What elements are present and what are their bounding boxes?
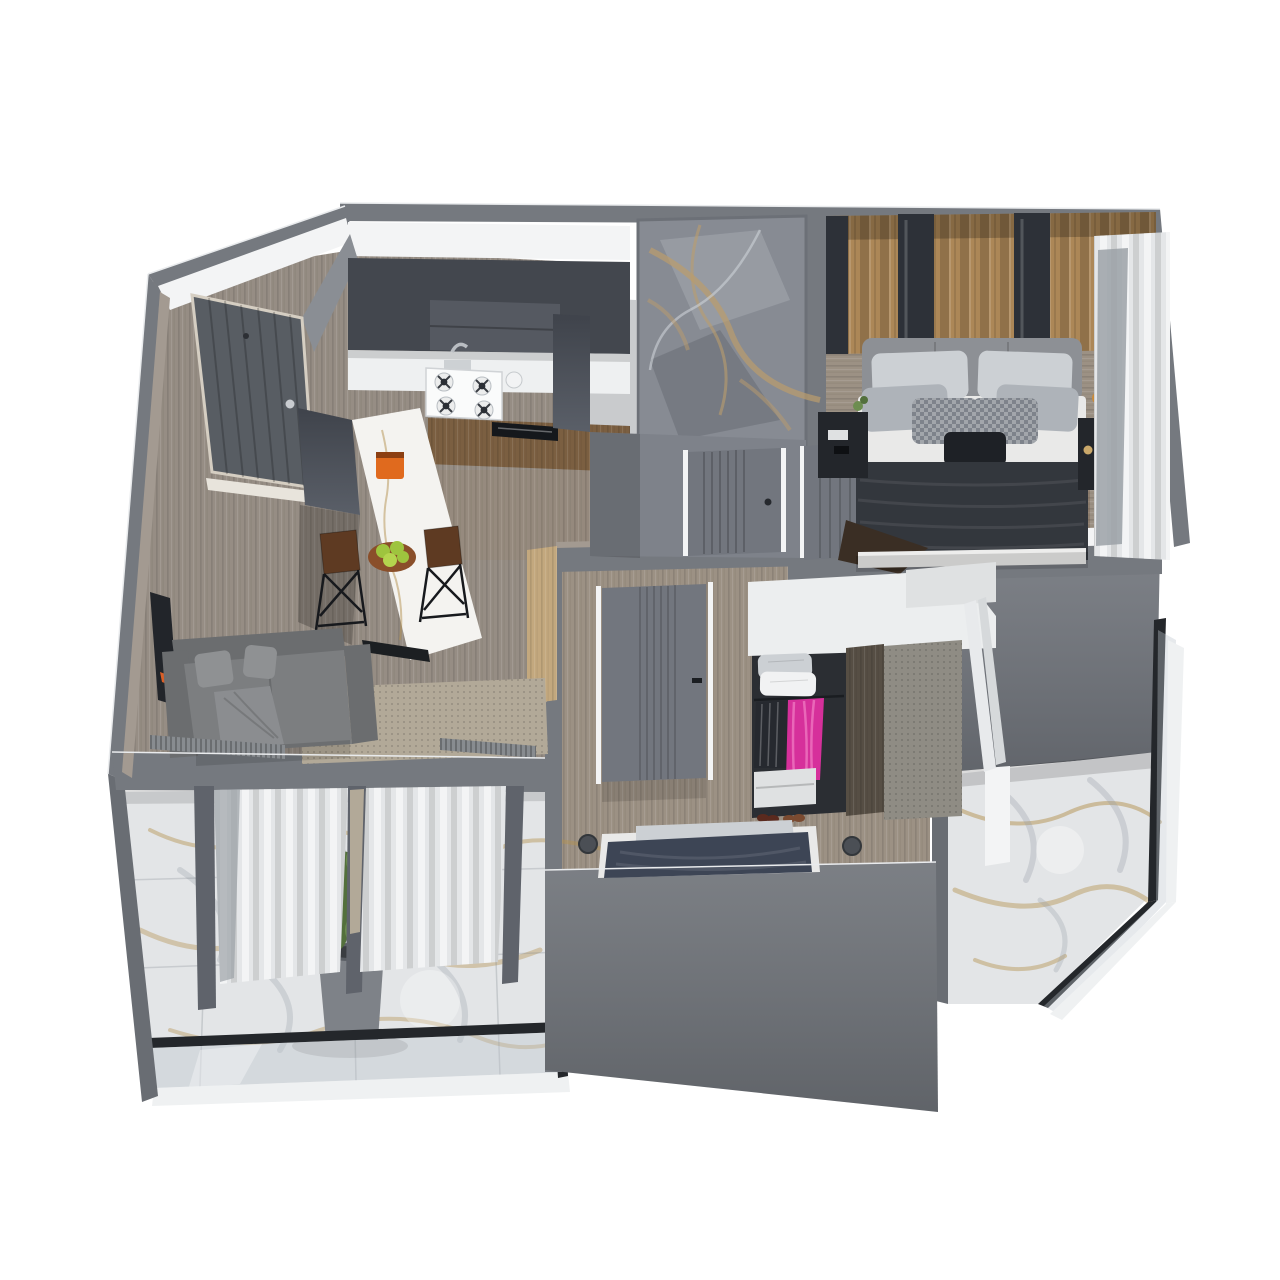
floor-plan-render bbox=[0, 0, 1280, 1280]
white-wall-cap bbox=[985, 766, 1010, 866]
bedroom1-door-frame bbox=[800, 446, 804, 558]
mirror-strip-left bbox=[826, 216, 848, 354]
bedroom2-front-wall-shading bbox=[545, 862, 938, 1112]
wall-face-shadow bbox=[590, 432, 640, 558]
door-handle bbox=[765, 499, 772, 506]
marble-blotch bbox=[400, 970, 460, 1030]
sofa-pillow bbox=[242, 644, 277, 679]
peephole bbox=[243, 333, 249, 339]
bedroom-primary bbox=[818, 212, 1170, 574]
door-frame-right bbox=[781, 448, 786, 552]
espresso-machine-top bbox=[376, 452, 404, 458]
apartment-3d-plan bbox=[0, 0, 1280, 1280]
curtain-folds bbox=[360, 786, 506, 972]
floor-spot bbox=[843, 837, 861, 855]
door-handle bbox=[286, 400, 295, 409]
kettle bbox=[506, 372, 522, 388]
mirror-strip bbox=[1014, 213, 1050, 351]
sofa-pillow bbox=[194, 650, 234, 689]
kitchen-ceiling-strip bbox=[348, 222, 630, 260]
mirror-strip bbox=[898, 214, 934, 352]
door-frame-right bbox=[708, 582, 713, 780]
fabric-panel-dots bbox=[884, 640, 962, 820]
floor-spot bbox=[579, 835, 597, 853]
espresso-machine bbox=[376, 455, 404, 479]
candle bbox=[1084, 446, 1093, 455]
door-shadow bbox=[602, 778, 706, 802]
tall-column bbox=[553, 314, 590, 432]
entry-cabinet-panel bbox=[298, 408, 360, 515]
hanging-clothes-dark bbox=[754, 700, 790, 768]
pillow-stack bbox=[758, 653, 817, 696]
door-frame-left bbox=[596, 586, 601, 784]
door-frame-left bbox=[683, 450, 688, 556]
wood-panel-grain bbox=[846, 644, 884, 816]
door-handle bbox=[692, 678, 702, 683]
